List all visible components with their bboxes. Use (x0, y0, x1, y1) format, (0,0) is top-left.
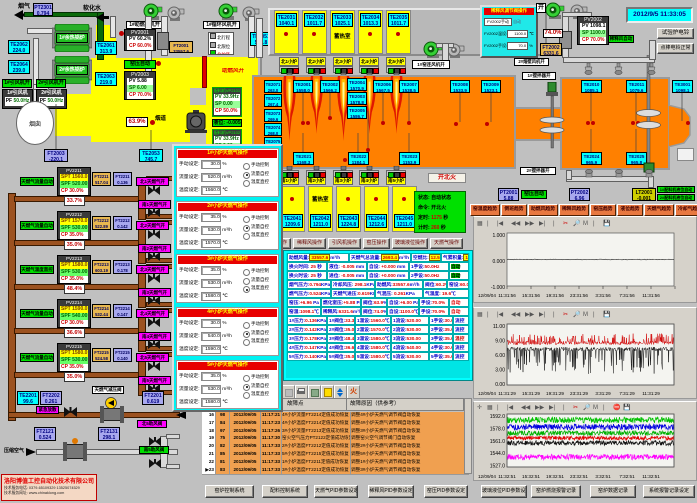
svg-text:1578.0: 1578.0 (490, 426, 506, 432)
svg-text:6.00: 6.00 (495, 353, 505, 359)
svg-text:0.00: 0.00 (495, 382, 505, 388)
svg-text:11:32:51: 11:32:51 (498, 474, 516, 479)
svg-text:9.00: 9.00 (495, 339, 505, 345)
svg-text:11:31:56: 11:31:56 (498, 293, 516, 298)
svg-text:11:32:51: 11:32:51 (642, 474, 660, 479)
svg-text:1561.0: 1561.0 (490, 439, 506, 445)
svg-text:1.000: 1.000 (492, 233, 505, 239)
svg-text:烟囱: 烟囱 (29, 120, 41, 128)
svg-text:7:31:29: 7:31:29 (619, 391, 635, 396)
svg-text:15:31:56: 15:31:56 (522, 293, 540, 298)
svg-text:1592.0: 1592.0 (490, 414, 506, 420)
svg-text:1544.0: 1544.0 (490, 451, 506, 457)
svg-text:11:31:29: 11:31:29 (498, 391, 516, 396)
svg-text:19:32:51: 19:32:51 (546, 474, 564, 479)
svg-text:12/09/04: 12/09/04 (478, 391, 496, 396)
svg-text:7:31:56: 7:31:56 (619, 293, 635, 298)
svg-text:23:31:56: 23:31:56 (570, 293, 588, 298)
svg-text:19:31:56: 19:31:56 (546, 293, 564, 298)
svg-text:3:32:51: 3:32:51 (595, 474, 611, 479)
svg-text:7:32:51: 7:32:51 (619, 474, 635, 479)
svg-text:11:31:56: 11:31:56 (642, 293, 660, 298)
svg-text:12/09/04: 12/09/04 (478, 293, 496, 298)
svg-text:12/09/04: 12/09/04 (478, 474, 496, 479)
svg-text:15:31:29: 15:31:29 (522, 391, 540, 396)
svg-text:1527.0: 1527.0 (490, 464, 506, 470)
svg-text:15:32:51: 15:32:51 (522, 474, 540, 479)
svg-text:0.000: 0.000 (492, 259, 505, 265)
svg-text:3:31:29: 3:31:29 (595, 391, 611, 396)
svg-text:3.00: 3.00 (495, 368, 505, 374)
svg-text:23:31:29: 23:31:29 (570, 391, 588, 396)
svg-text:11:31:29: 11:31:29 (642, 391, 660, 396)
svg-text:-1.000: -1.000 (491, 285, 505, 291)
svg-text:3:31:56: 3:31:56 (595, 293, 611, 298)
svg-text:11.00: 11.00 (493, 324, 505, 330)
svg-text:23:32:51: 23:32:51 (570, 474, 588, 479)
svg-text:19:31:29: 19:31:29 (546, 391, 564, 396)
